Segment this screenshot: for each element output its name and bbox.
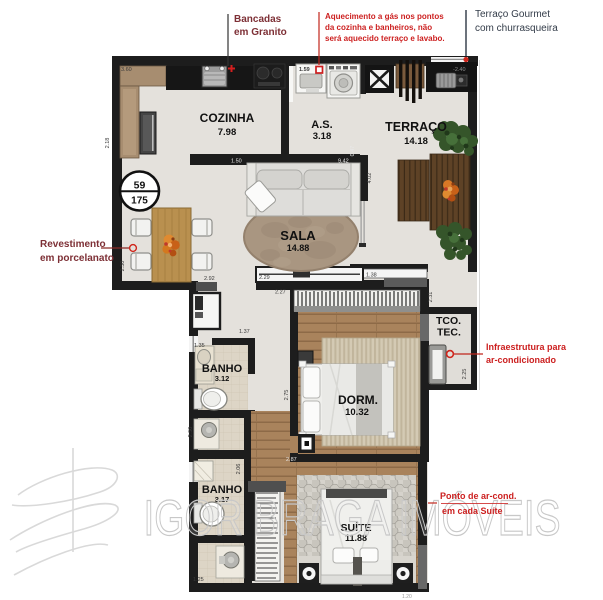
svg-text:2.29: 2.29: [259, 275, 270, 281]
svg-text:SALA: SALA: [280, 228, 316, 243]
svg-text:14.88: 14.88: [287, 243, 310, 253]
svg-text:14.18: 14.18: [404, 136, 428, 147]
svg-text:2.75: 2.75: [284, 390, 290, 401]
svg-text:em cada Suíte: em cada Suíte: [442, 506, 503, 516]
svg-text:A.S.: A.S.: [311, 119, 332, 131]
svg-text:175: 175: [131, 196, 148, 207]
svg-text:em Granito: em Granito: [234, 27, 287, 38]
svg-text:Revestimento: Revestimento: [40, 239, 106, 250]
svg-text:Bancadas: Bancadas: [234, 14, 282, 25]
svg-text:da cozinha e banheiros, não: da cozinha e banheiros, não: [325, 23, 432, 32]
svg-text:TEC.: TEC.: [437, 327, 461, 339]
svg-text:TERRAÇO: TERRAÇO: [385, 120, 447, 134]
svg-text:59: 59: [134, 180, 146, 192]
svg-text:1.59: 1.59: [299, 67, 310, 73]
svg-text:1.38: 1.38: [366, 273, 377, 279]
svg-text:com churrasqueira: com churrasqueira: [475, 23, 558, 34]
svg-text:-2.40: -2.40: [453, 67, 466, 73]
svg-text:1.50: 1.50: [231, 159, 242, 165]
svg-text:10.32: 10.32: [345, 407, 369, 418]
svg-text:3.60: 3.60: [121, 67, 132, 73]
svg-text:2.50: 2.50: [120, 261, 126, 272]
svg-text:2.27: 2.27: [275, 290, 286, 296]
svg-text:1.37: 1.37: [239, 329, 250, 335]
svg-text:1.35: 1.35: [194, 343, 205, 349]
svg-text:Aquecimento a gás nos pontos: Aquecimento a gás nos pontos: [325, 12, 444, 21]
svg-text:COZINHA: COZINHA: [200, 111, 255, 125]
svg-text:2.31: 2.31: [428, 292, 434, 303]
svg-text:1.20: 1.20: [402, 594, 412, 600]
svg-text:2.25: 2.25: [462, 369, 468, 380]
svg-text:0.47: 0.47: [350, 146, 356, 157]
svg-text:4.02: 4.02: [367, 173, 373, 184]
svg-text:1.25: 1.25: [193, 577, 204, 583]
svg-text:3.12: 3.12: [215, 374, 230, 383]
svg-text:será aquecido terraço e lavabo: será aquecido terraço e lavabo.: [325, 34, 445, 43]
svg-text:Ponto de ar-cond.: Ponto de ar-cond.: [440, 491, 517, 501]
svg-text:DORM.: DORM.: [338, 393, 378, 407]
svg-text:2.50: 2.50: [188, 427, 194, 438]
svg-text:TCO.: TCO.: [436, 315, 461, 327]
svg-text:2.87: 2.87: [286, 457, 297, 463]
svg-text:3.18: 3.18: [313, 131, 332, 142]
svg-text:2.92: 2.92: [204, 276, 215, 282]
svg-text:Infraestrutura para: Infraestrutura para: [486, 342, 567, 352]
svg-text:ar-condicionado: ar-condicionado: [486, 355, 557, 365]
svg-text:7.98: 7.98: [218, 127, 237, 138]
svg-text:2.18: 2.18: [105, 138, 111, 149]
svg-text:em porcelanato: em porcelanato: [40, 253, 114, 264]
svg-text:Terraço Gourmet: Terraço Gourmet: [475, 9, 550, 20]
svg-text:2.06: 2.06: [236, 464, 242, 475]
